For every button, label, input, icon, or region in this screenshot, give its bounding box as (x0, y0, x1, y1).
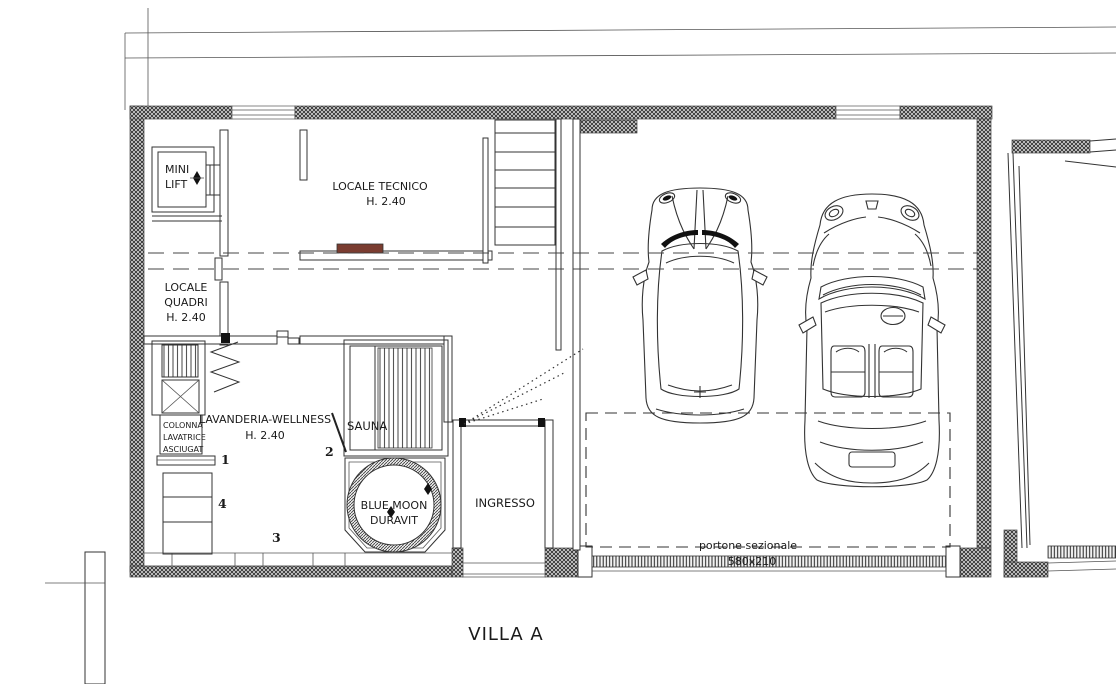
shaft-symbol (162, 380, 199, 413)
car-right (799, 194, 945, 487)
wall-ingresso-jamb-right (545, 548, 578, 577)
red-annotation-4: 4 (218, 496, 227, 511)
window-top-1 (232, 106, 295, 119)
wall-bottom-left (130, 566, 452, 577)
wall-garage-pier (573, 120, 637, 133)
boundary-line-second (125, 53, 1116, 58)
wall-top-c (900, 106, 992, 119)
neighbor-threshold-lines (1048, 561, 1116, 571)
window-top-2 (836, 106, 900, 119)
wall-garage-left (573, 119, 580, 550)
towel-radiator-zigzag (211, 342, 239, 392)
wall-stair-left (483, 138, 488, 263)
door-leaf-quadri (215, 258, 222, 280)
locale-tecnico-label: LOCALE TECNICO (332, 180, 428, 193)
colonna-label-3: ASCIUGAT (163, 445, 203, 454)
door-jamb-black (221, 333, 230, 343)
wall-top-a (130, 106, 232, 119)
neighbor-wall-top (1012, 140, 1090, 153)
lift-landing-lines (152, 216, 222, 221)
villa-title: VILLA A (468, 624, 543, 645)
wall-laundry-top-a (144, 336, 277, 344)
wall-tecnico-stub (300, 130, 307, 180)
sight-dotted-lines (464, 349, 583, 424)
wall-quadri-upper (220, 130, 228, 256)
red-annotation-1: 1 (221, 452, 230, 467)
sectional-door-cap-right (946, 546, 960, 577)
wall-right (977, 119, 991, 548)
sliding-door-leaf-a (277, 331, 288, 337)
locale-quadri-height: H. 2.40 (166, 311, 206, 324)
ingresso-jamb-right (538, 418, 545, 427)
wall-ingresso-jamb-left (452, 548, 463, 577)
fence-post (45, 552, 105, 684)
lavanderia-height: H. 2.40 (245, 429, 285, 442)
wall-top-b (295, 106, 836, 119)
neighbor-wall-bottom (1004, 562, 1048, 577)
storage-cabinet (163, 473, 212, 554)
sauna-label: SAUNA (347, 419, 387, 433)
bathtub-label-2: DURAVIT (370, 514, 418, 527)
stair-flight (495, 120, 555, 245)
entry-door-threshold (463, 563, 545, 574)
red-annotation-2: 2 (325, 444, 334, 459)
sectional-door-label: portone sezionale (699, 539, 797, 552)
heater-element (337, 244, 383, 253)
locale-tecnico-height: H. 2.40 (366, 195, 406, 208)
locale-quadri-label-2: QUADRI (164, 296, 208, 309)
colonna-label-1: COLONNA (163, 421, 203, 430)
sliding-door-leaf-b (288, 338, 299, 344)
fence-post-rect (85, 552, 105, 684)
wall-ingresso-left (453, 420, 461, 548)
wall-left (130, 106, 144, 572)
wall-corner-br (960, 548, 991, 577)
stairs (495, 120, 555, 245)
neighbor-wall-left (1008, 153, 1030, 548)
ingresso-label: INGRESSO (475, 496, 535, 510)
floor-plan-svg: MINI LIFT LOCALE TECNICO H. 2.40 LOCALE … (0, 0, 1116, 684)
ingresso-jamb-left (459, 418, 466, 427)
red-annotation-3: 3 (272, 530, 281, 545)
colonna-label-2: LAVATRICE (163, 433, 206, 442)
washer-dryer-column (162, 345, 198, 377)
lavanderia-label: LAVANDERIA-WELLNESS (199, 413, 331, 426)
locale-quadri-label-1: LOCALE (165, 281, 208, 294)
floor-plan-page: MINI LIFT LOCALE TECNICO H. 2.40 LOCALE … (0, 0, 1116, 684)
neighbor-building (1004, 139, 1116, 577)
counter-shelf (157, 456, 215, 465)
window-band-bottom (144, 553, 452, 566)
mini-lift-label-2: LIFT (165, 178, 188, 191)
sectional-door-cap-left (578, 546, 592, 577)
neighbor-door-strip (1048, 546, 1116, 558)
property-boundary (125, 8, 1116, 110)
wall-ingresso-right (545, 420, 553, 548)
sectional-door-dimension: 580x210 (728, 555, 777, 568)
car-left (633, 188, 767, 423)
boundary-line-top (125, 27, 1116, 33)
sauna-benches (378, 348, 432, 448)
sauna-room (332, 340, 448, 456)
wall-tecnico-bottom (300, 251, 492, 260)
mini-lift-label-1: MINI (165, 163, 189, 176)
stair-treads (495, 133, 555, 227)
wall-stair-right-inner (556, 119, 561, 350)
bathtub-label-1: BLUE MOON (361, 499, 428, 512)
